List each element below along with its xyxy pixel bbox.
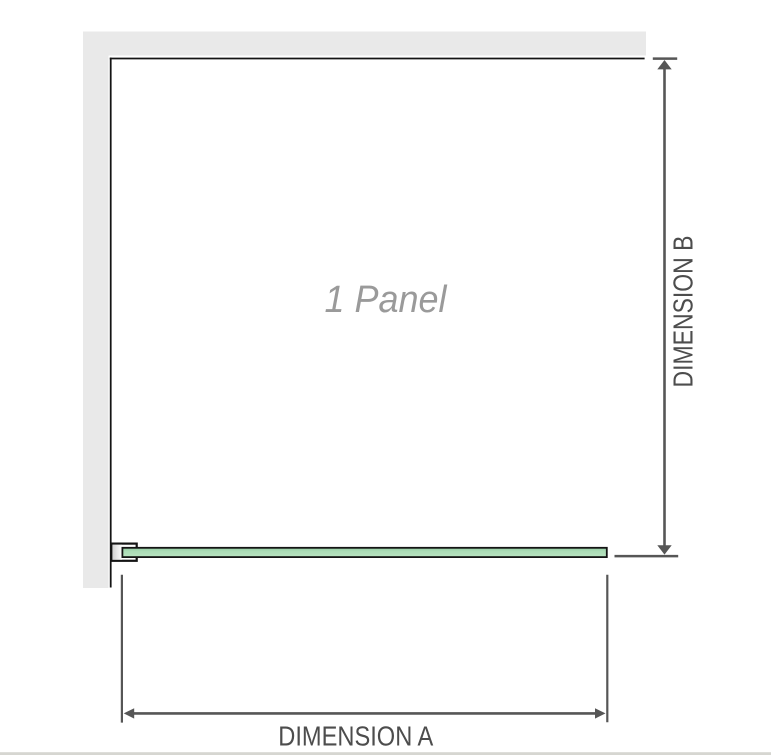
svg-text:DIMENSION B: DIMENSION B <box>667 236 698 388</box>
svg-text:1 Panel: 1 Panel <box>325 279 448 321</box>
svg-text:DIMENSION A: DIMENSION A <box>278 721 433 752</box>
